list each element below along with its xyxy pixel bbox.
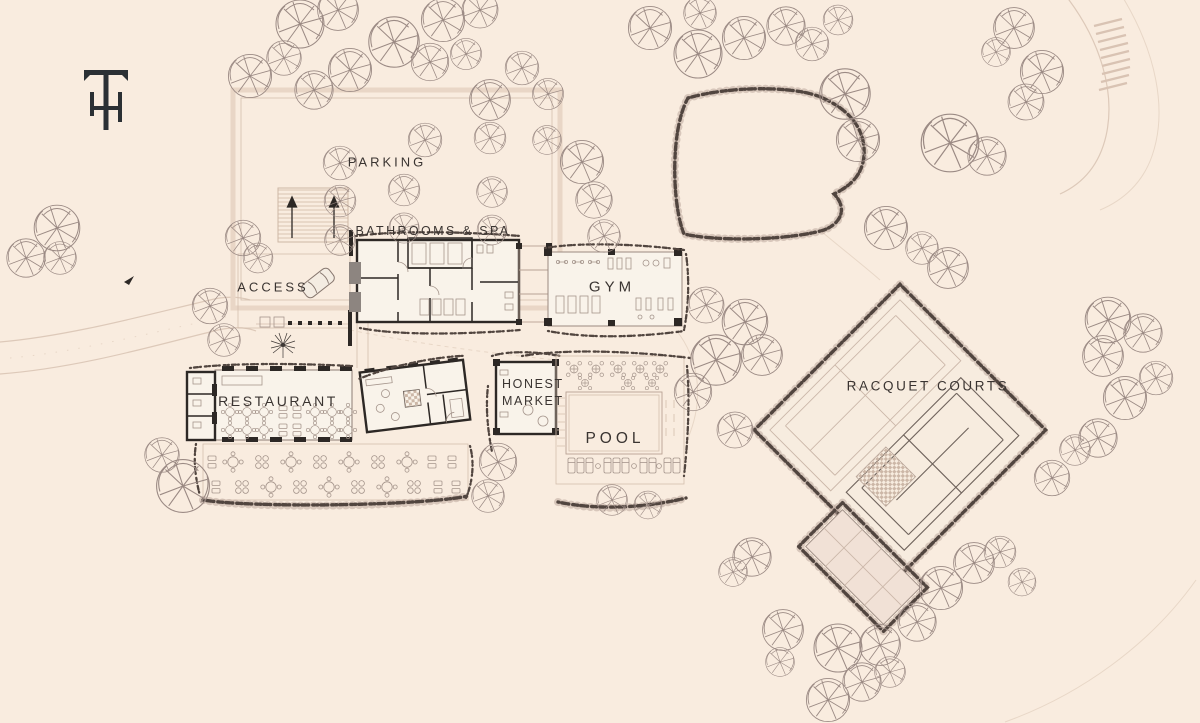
restaurant-terrace <box>195 444 473 506</box>
palm-tree-icon <box>271 333 295 358</box>
parking-ramp <box>278 188 348 242</box>
label-bathrooms-spa: BATHROOMS & SPA <box>355 224 510 238</box>
racquet-courts-area <box>754 284 1045 575</box>
label-pool: POOL <box>585 430 644 448</box>
label-access: ACCESS <box>237 280 308 295</box>
label-restaurant: RESTAURANT <box>218 393 338 409</box>
terrace-tables <box>208 452 460 497</box>
direction-arrow <box>124 276 134 285</box>
kitchen-building <box>358 355 471 432</box>
label-gym: GYM <box>589 279 635 296</box>
pool-tables <box>566 361 667 389</box>
label-racquet-courts: RACQUET COURTS <box>847 379 1010 394</box>
label-honest-market: HONEST MARKET <box>502 376 564 410</box>
garden-hedge-enclosure <box>675 89 864 239</box>
pool-loungers <box>568 458 680 473</box>
site-plan-page: { "page": { "background": "#f9ecdf" }, "… <box>0 0 1200 723</box>
roads <box>0 0 1196 722</box>
tree-layer <box>7 0 1173 722</box>
spa-building <box>349 232 552 333</box>
label-honest-market-line2: MARKET <box>502 393 564 410</box>
th-monogram-logo <box>84 70 128 135</box>
label-honest-market-line1: HONEST <box>502 376 564 393</box>
site-plan-drawing <box>0 0 1200 723</box>
crosswalk-hatch <box>1094 19 1130 90</box>
label-parking: PARKING <box>348 155 427 170</box>
